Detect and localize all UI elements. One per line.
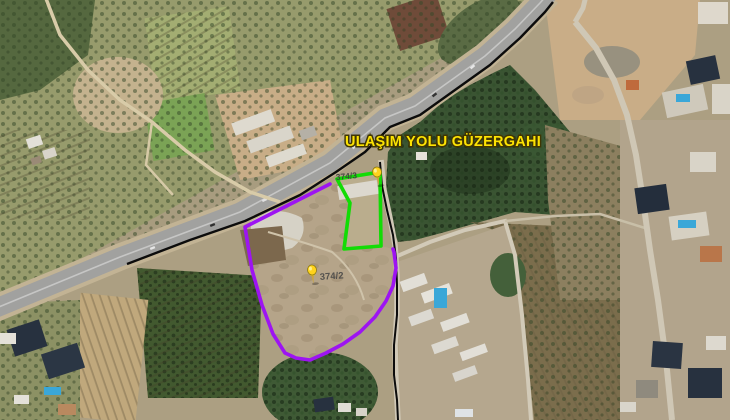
parcel-label: 374/2 bbox=[319, 270, 343, 283]
swimming-pool bbox=[434, 288, 447, 308]
orange-roof-house bbox=[626, 80, 639, 90]
satellite-map-viewport[interactable]: ULAŞIM YOLU GÜZERGAHI 374/3 374/2 bbox=[0, 0, 730, 420]
parcel-label: 374/3 bbox=[335, 170, 357, 182]
house-in-trees bbox=[416, 152, 427, 160]
swimming-pool bbox=[678, 220, 696, 228]
satellite-canvas: ULAŞIM YOLU GÜZERGAHI 374/3 374/2 bbox=[0, 0, 730, 420]
swimming-pool bbox=[44, 387, 61, 395]
route-title-label: ULAŞIM YOLU GÜZERGAHI bbox=[345, 133, 541, 150]
swimming-pool bbox=[676, 94, 690, 102]
